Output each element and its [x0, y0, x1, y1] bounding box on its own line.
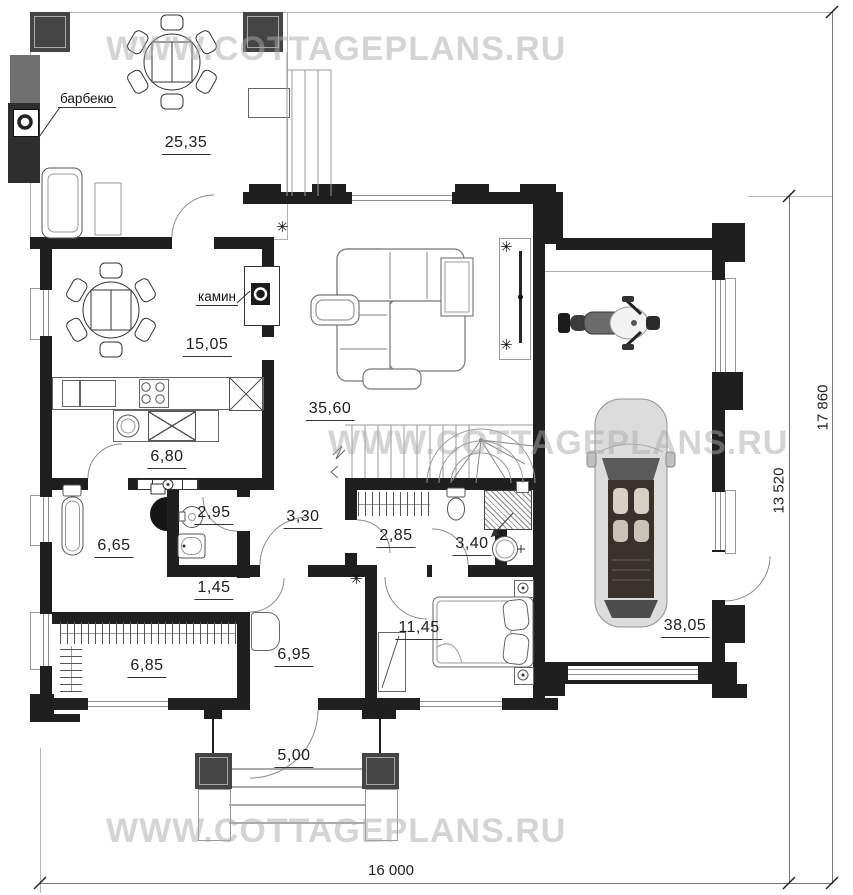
terrace-sofa	[42, 168, 121, 238]
area-label-bath-small: 2,95	[194, 505, 233, 525]
area-label-storage: 1,45	[194, 580, 233, 600]
area-label-shower-room: 3,40	[452, 536, 491, 556]
area-label-closet: 2,85	[376, 528, 415, 548]
tv-dot	[518, 295, 523, 300]
dimension-overall-height: 17 860	[815, 363, 832, 453]
toilet-icon	[447, 488, 465, 497]
kitchen-sink-icon	[117, 415, 139, 437]
area-label-wardrobe: 6,85	[127, 658, 166, 678]
watermark-bottom: WWW.COTTAGEPLANS.RU	[106, 812, 566, 851]
fireplace-ring	[255, 289, 266, 300]
watermark-middle: WWW.COTTAGEPLANS.RU	[328, 424, 788, 463]
area-label-kitchen: 6,80	[147, 449, 186, 469]
terrace-steps	[287, 52, 331, 196]
fireplace-label: камин	[196, 289, 238, 306]
area-label-living: 35,60	[306, 401, 355, 421]
barbecue-ring	[19, 116, 31, 128]
area-label-garage: 38,05	[661, 618, 710, 638]
area-label-dining: 15,05	[183, 337, 232, 357]
sauna-heater-icon	[150, 497, 167, 531]
lamp-dot	[522, 674, 525, 677]
dining-table	[65, 263, 157, 357]
floor-plan: WWW.COTTAGEPLANS.RU WWW.COTTAGEPLANS.RU …	[0, 0, 853, 895]
area-label-bedroom: 11,45	[395, 620, 442, 640]
area-label-sauna: 6,65	[94, 538, 133, 558]
kitchen-details	[117, 383, 173, 490]
barbecue-label: барбекю	[58, 91, 116, 108]
dimension-width: 16 000	[330, 862, 452, 879]
area-label-terrace: 25,35	[162, 135, 211, 155]
motorcycle-icon	[558, 296, 660, 350]
lamp-dot	[522, 587, 525, 590]
area-label-hall: 3,30	[283, 509, 322, 529]
area-label-entry: 6,95	[274, 647, 313, 667]
area-label-porch: 5,00	[274, 748, 313, 768]
coffee-table	[441, 258, 473, 316]
wardrobe-door-line	[382, 636, 399, 688]
bed	[433, 597, 533, 667]
watermark-top: WWW.COTTAGEPLANS.RU	[106, 30, 566, 69]
